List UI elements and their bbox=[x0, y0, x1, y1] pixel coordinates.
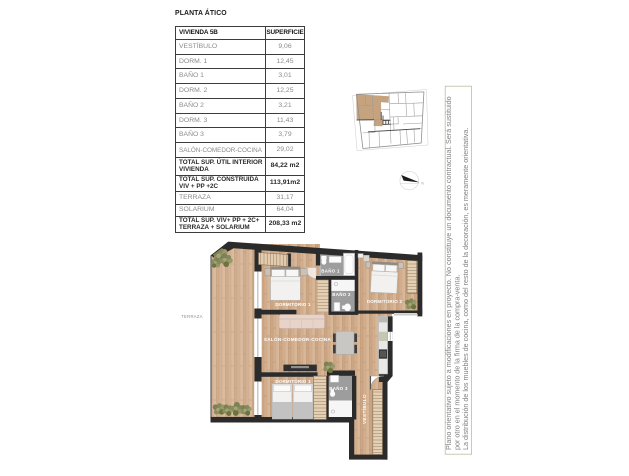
svg-text:BAÑO 1: BAÑO 1 bbox=[321, 268, 340, 273]
svg-text:BAÑO 2: BAÑO 2 bbox=[332, 292, 351, 297]
svg-text:VESTÍBULO: VESTÍBULO bbox=[360, 394, 367, 424]
svg-text:BAÑO 3: BAÑO 3 bbox=[329, 386, 348, 391]
svg-text:DORMITORIO 1: DORMITORIO 1 bbox=[275, 302, 311, 307]
svg-text:TERRAZA: TERRAZA bbox=[181, 314, 203, 319]
svg-text:La distribución de los muebles: La distribución de los muebles de cocina… bbox=[461, 128, 470, 450]
svg-text:SALÓN-COMEDOR-COCINA: SALÓN-COMEDOR-COCINA bbox=[264, 335, 332, 342]
svg-text:DORMITORIO 3: DORMITORIO 3 bbox=[275, 379, 311, 384]
svg-text:N: N bbox=[421, 181, 424, 185]
svg-text:DORMITORIO 2: DORMITORIO 2 bbox=[367, 299, 403, 304]
